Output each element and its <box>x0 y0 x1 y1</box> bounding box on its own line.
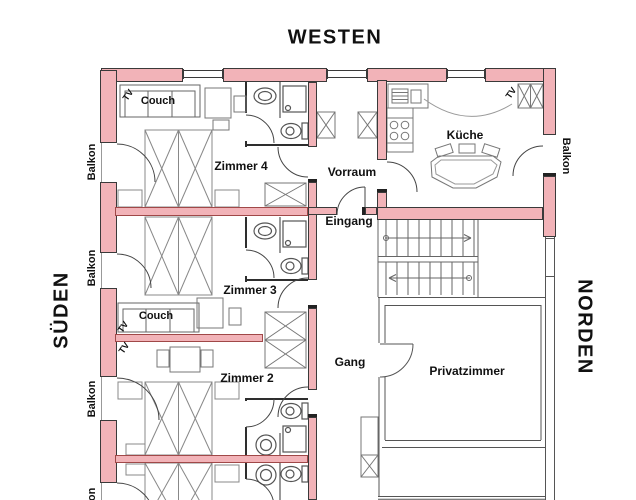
bed-icons <box>118 130 239 500</box>
privatzimmer-walls <box>378 297 545 499</box>
couch-label-zimmer3: Couch <box>139 310 173 322</box>
bathroom-bottom-room <box>246 463 308 500</box>
wall-kitchen-left-1 <box>377 80 387 160</box>
room-label-zimmer2: Zimmer 2 <box>220 371 273 385</box>
wall-divider-zimmer3-2 <box>115 334 263 342</box>
wall-right-2 <box>543 176 556 237</box>
wall-corridor-3 <box>308 308 317 390</box>
balcony-label-left-1: Balkon <box>86 144 98 181</box>
room-label-kueche: Küche <box>447 128 484 142</box>
bathroom-zimmer3 <box>245 217 308 282</box>
right-wall-window-icon <box>545 237 555 500</box>
balcony-label-left-2: Balkon <box>86 250 98 287</box>
room-label-privatzimmer: Privatzimmer <box>429 364 504 378</box>
compass-south-label: SÜDEN <box>51 271 74 349</box>
balcony-label-left-4: Balkon <box>86 488 98 500</box>
room-label-zimmer4: Zimmer 4 <box>214 159 267 173</box>
floor-plan: WESTEN SÜDEN NORDEN Balkon Balkon Balkon… <box>0 0 636 500</box>
wall-right-1 <box>543 68 556 135</box>
room-label-vorraum: Vorraum <box>328 165 376 179</box>
wall-left-1 <box>100 70 117 143</box>
wall-corridor-4 <box>308 417 317 500</box>
bathroom-zimmer4 <box>245 82 308 147</box>
balcony-label-left-3: Balkon <box>86 381 98 418</box>
balcony-label-right: Balkon <box>560 138 572 175</box>
wall-left-4 <box>100 420 117 483</box>
wall-divider-zimmer4-3 <box>115 207 308 216</box>
wall-left-2 <box>100 182 117 253</box>
room-label-gang: Gang <box>335 355 366 369</box>
staircase <box>378 220 478 297</box>
room-label-zimmer3: Zimmer 3 <box>223 283 276 297</box>
wall-corridor-1 <box>308 82 317 147</box>
room-label-eingang: Eingang <box>325 214 372 228</box>
wall-top-2 <box>223 68 327 82</box>
wall-left-3 <box>100 288 117 377</box>
compass-west-label: WESTEN <box>288 27 383 50</box>
wall-kitchen-bottom <box>377 207 543 220</box>
door-arcs <box>117 144 543 500</box>
couch-label-zimmer4: Couch <box>141 95 175 107</box>
bathroom-zimmer2 <box>245 399 308 455</box>
compass-north-label: NORDEN <box>573 279 596 375</box>
wall-divider-zimmer2-1 <box>115 455 308 463</box>
wall-corridor-2 <box>308 182 317 280</box>
